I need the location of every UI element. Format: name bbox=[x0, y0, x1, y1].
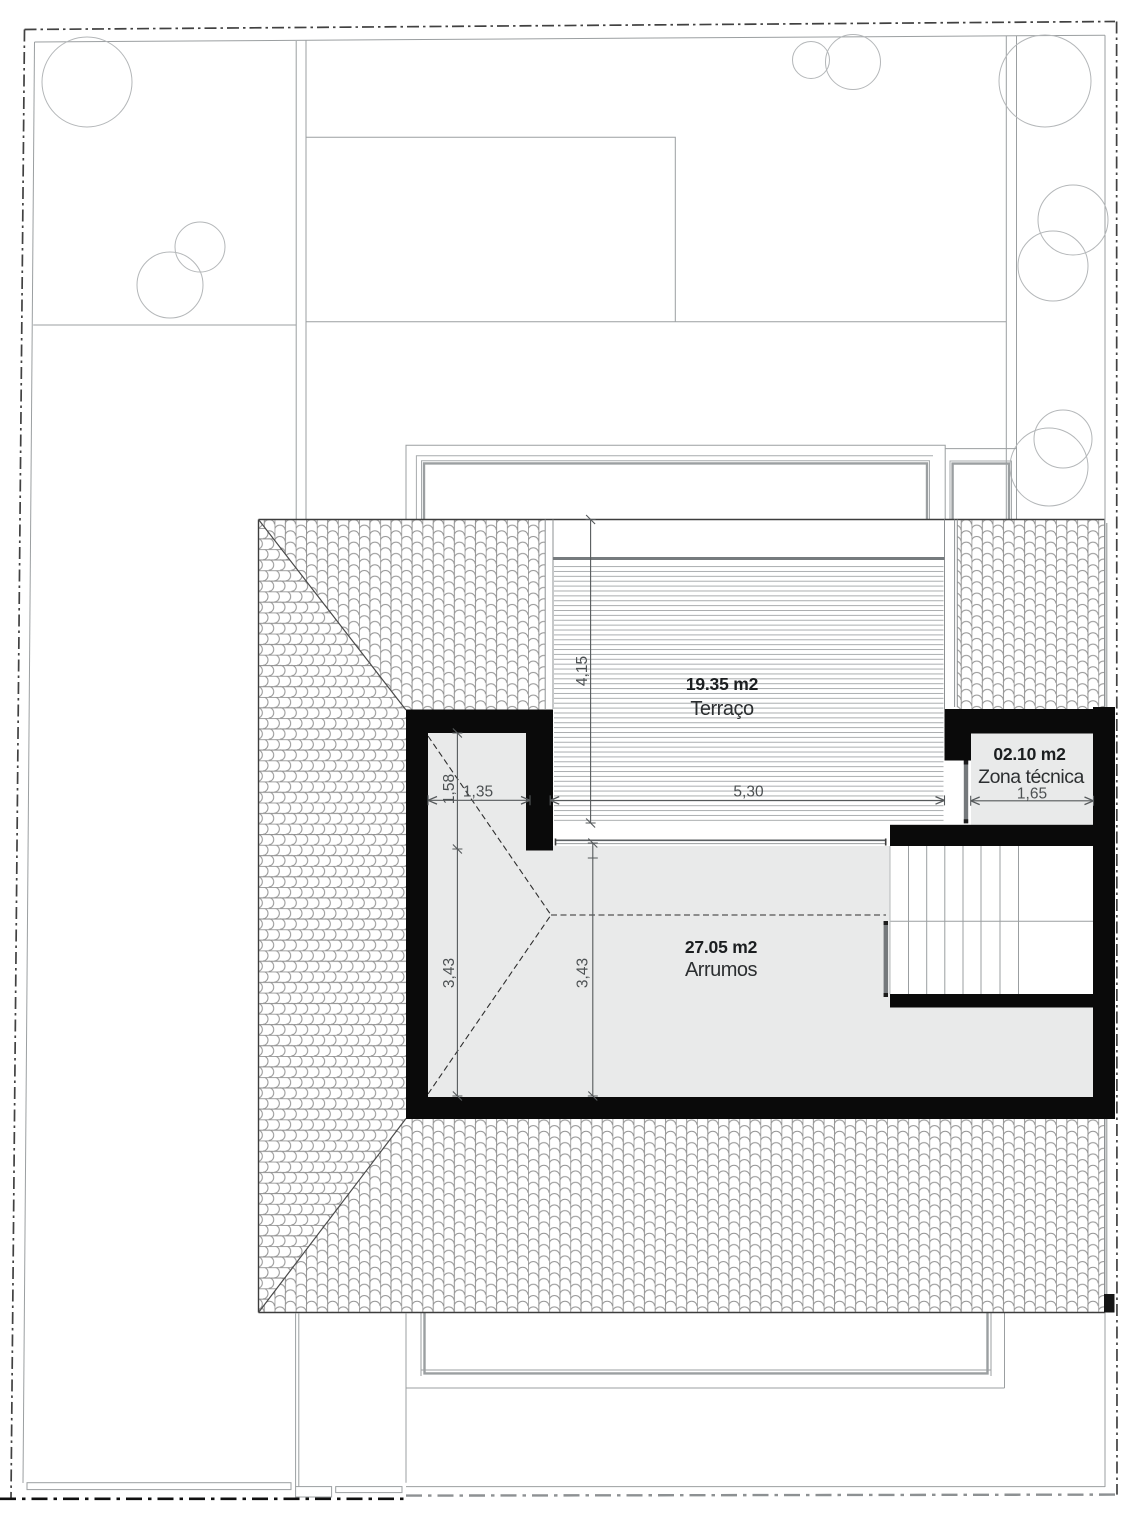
svg-text:02.10 m2: 02.10 m2 bbox=[993, 744, 1066, 764]
svg-text:Terraço: Terraço bbox=[690, 698, 754, 720]
svg-text:Arrumos: Arrumos bbox=[685, 959, 758, 981]
svg-text:19.35 m2: 19.35 m2 bbox=[686, 674, 759, 694]
svg-text:4,15: 4,15 bbox=[574, 656, 591, 686]
svg-text:1,35: 1,35 bbox=[463, 784, 493, 801]
svg-text:27.05 m2: 27.05 m2 bbox=[685, 937, 758, 957]
svg-text:1,65: 1,65 bbox=[1017, 786, 1047, 803]
svg-text:Zona técnica: Zona técnica bbox=[978, 766, 1084, 788]
svg-text:3,43: 3,43 bbox=[575, 958, 592, 988]
svg-text:3,43: 3,43 bbox=[441, 958, 458, 988]
svg-text:1,58: 1,58 bbox=[441, 774, 458, 804]
svg-text:5,30: 5,30 bbox=[733, 784, 764, 801]
